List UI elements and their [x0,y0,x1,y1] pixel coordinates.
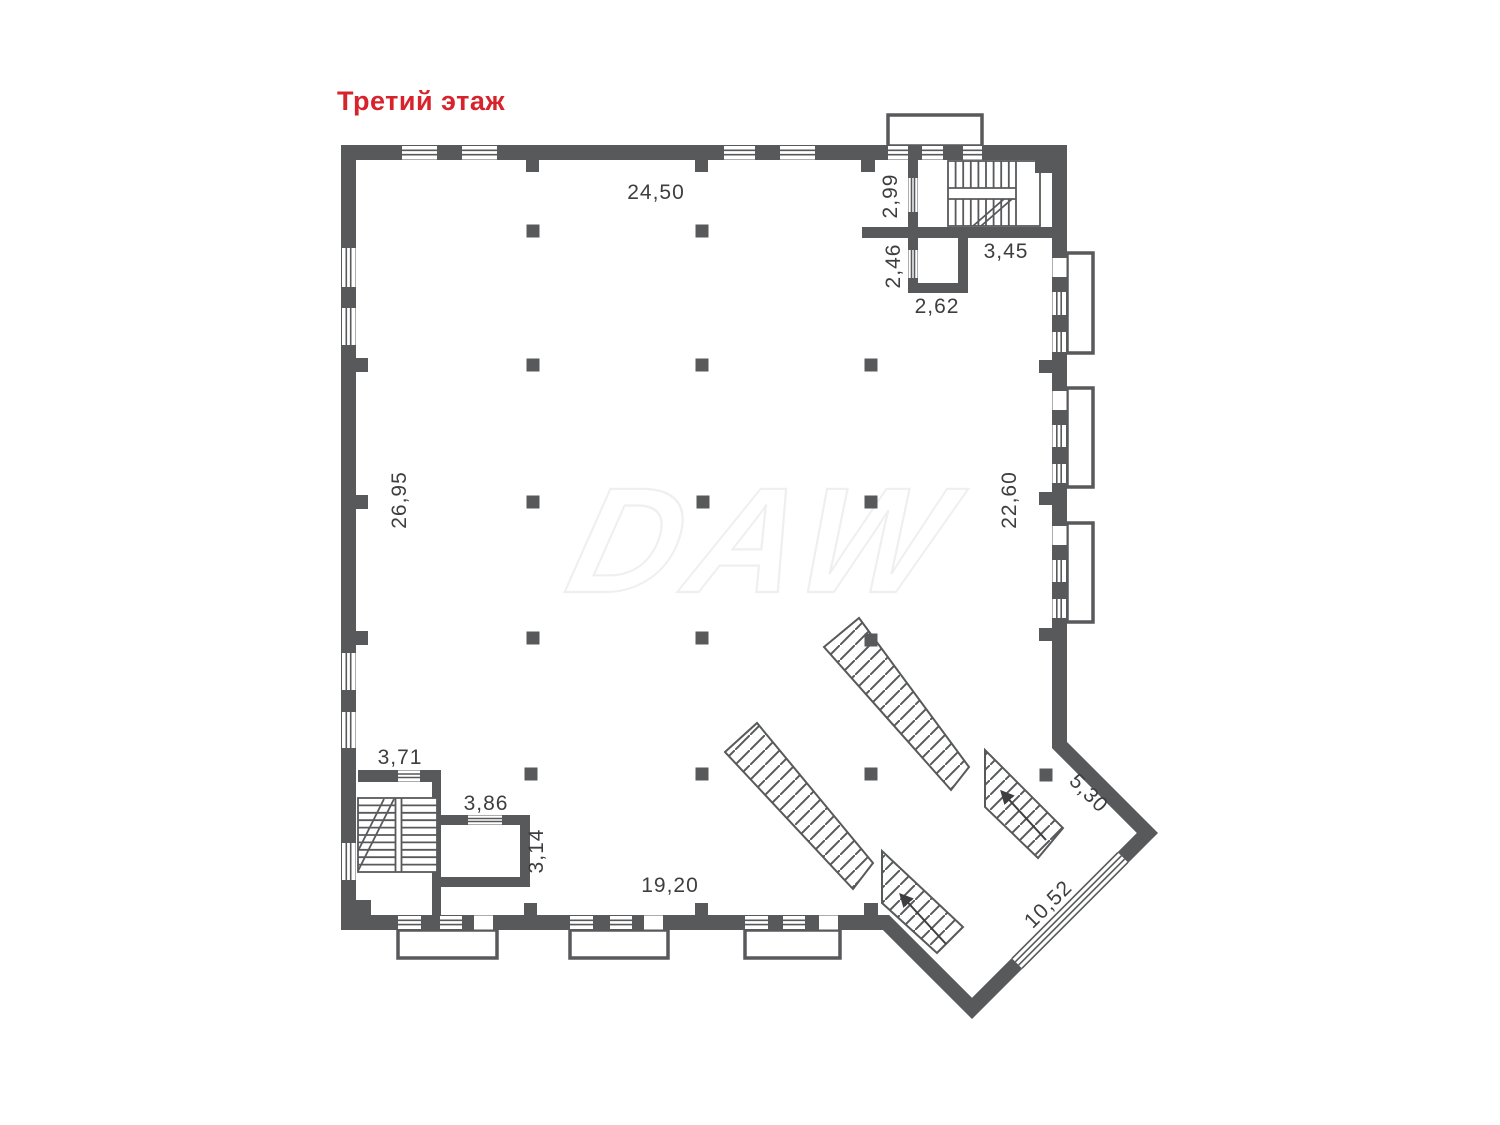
door-opening [644,916,663,930]
window-right [1053,258,1067,618]
balcony-door [1053,391,1067,410]
dim-bottom-width: 19,20 [641,874,699,897]
dim-room-height: 3,14 [525,829,548,874]
floor-plan-page: Третий этаж DAW [0,0,1500,1125]
escalators-group [725,618,1063,953]
escalator-band-3 [985,750,1063,858]
staircase-top-right [948,161,1040,226]
door-opening [819,916,838,930]
right-balcony-3 [1067,523,1093,622]
bottom-balcony-2 [570,930,668,958]
dim-left-height: 26,95 [388,471,411,529]
dim-shaft-width: 2,62 [915,295,960,318]
dim-right-height: 22,60 [998,471,1021,529]
dim-stair-hall: 2,99 [879,174,902,219]
right-balcony-1 [1067,253,1093,353]
dim-stairwell-width: 3,71 [378,746,423,769]
right-balcony-2 [1067,388,1093,487]
dim-diagonal-wall: 5,30 [1065,769,1113,817]
door-opening [474,916,493,930]
dim-top-width: 24,50 [627,181,685,204]
dim-stair-landing: 3,45 [984,240,1029,263]
watermark-text: DAW [554,457,977,624]
floor-plan-canvas: DAW [0,0,1500,1125]
balcony-door [1053,526,1067,545]
staircase-bottom-left [358,798,437,872]
top-landing [888,115,982,146]
dim-diagonal-window: 10,52 [1020,876,1077,933]
dim-room-width: 3,86 [464,792,509,815]
escalator-band-1 [824,618,969,790]
corner-pier [355,900,371,922]
bottom-balcony-1 [398,930,497,958]
bottom-balcony-3 [745,930,840,958]
dim-shaft-height: 2,46 [882,244,905,289]
balcony-door [1053,258,1067,277]
escalator-band-2 [725,723,873,889]
